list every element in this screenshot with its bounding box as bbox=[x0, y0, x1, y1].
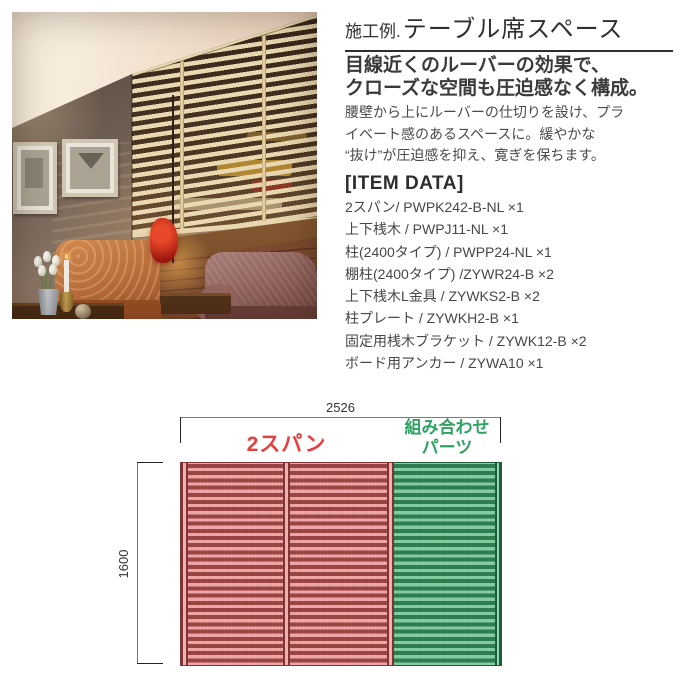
item-row: 柱(2400タイプ) / PWPP24-NL ×1 bbox=[345, 241, 680, 263]
description-line-1: 腰壁から上にルーバーの仕切りを設け、プラ bbox=[345, 102, 680, 124]
tulip-flower bbox=[49, 264, 57, 275]
picture-art-right bbox=[70, 147, 110, 189]
title-prefix: 施工例. bbox=[345, 17, 401, 42]
parts-label-line-1: 組み合わせ bbox=[393, 418, 501, 438]
item-row: 棚柱(2400タイプ) /ZYWR24-B ×2 bbox=[345, 263, 680, 285]
parts-label-line-2: パーツ bbox=[393, 438, 501, 458]
dimension-tick bbox=[137, 462, 163, 463]
candle-flame bbox=[65, 254, 68, 259]
diagram-height-dimension: 1600 bbox=[116, 524, 132, 604]
diagram-post bbox=[495, 463, 501, 665]
wall-corner-shadow bbox=[131, 74, 133, 244]
picture-frame-left bbox=[13, 142, 57, 214]
picture-detail bbox=[25, 158, 43, 188]
description-line-3: “抜け”が圧迫感を抑え、寛ぎを保ちます。 bbox=[345, 145, 680, 167]
diagram-height-dimension-line bbox=[137, 462, 138, 664]
installation-photo bbox=[12, 12, 317, 319]
diagram-width-dimension: 2526 bbox=[180, 400, 501, 415]
diagram-parts-panel bbox=[393, 462, 502, 666]
candlestick bbox=[60, 292, 73, 312]
tulip-flower bbox=[43, 251, 51, 262]
dimension-tick bbox=[137, 663, 163, 664]
item-row: ボード用アンカー / ZYWA10 ×1 bbox=[345, 352, 680, 374]
page: 施工例. テーブル席スペース 目線近くのルーバーの効果で、 クローズな空間も圧迫… bbox=[0, 0, 680, 680]
picture-frame-right bbox=[62, 139, 118, 197]
item-row: 上下桟木L金具 / ZYWKS2-B ×2 bbox=[345, 285, 680, 307]
item-row: 2スパン/ PWPK242-B-NL ×1 bbox=[345, 196, 680, 218]
item-data-heading: [ITEM DATA] bbox=[345, 173, 675, 195]
tulip-bucket bbox=[38, 289, 59, 315]
diagram-span-panel bbox=[180, 462, 395, 666]
description-line-2: イベート感のあるスペースに。緩やかな bbox=[345, 124, 680, 146]
page-title: 施工例. テーブル席スペース bbox=[345, 9, 673, 52]
tulip-flower bbox=[38, 265, 46, 276]
diagram-post bbox=[283, 463, 290, 665]
lead-line-2: クローズな空間も圧迫感なく構成。 bbox=[345, 77, 675, 100]
item-row: 柱プレート / ZYWKH2-B ×1 bbox=[345, 307, 680, 329]
title-text: テーブル席スペース bbox=[403, 9, 624, 44]
item-data-list: 2スパン/ PWPK242-B-NL ×1 上下桟木 / PWPJ11-NL ×… bbox=[345, 196, 680, 374]
diagram-post bbox=[181, 463, 188, 665]
item-row: 固定用桟木ブラケット / ZYWK12-B ×2 bbox=[345, 330, 680, 352]
lead-line-1: 目線近くのルーバーの効果で、 bbox=[345, 54, 675, 77]
glass-ornament bbox=[75, 304, 91, 319]
diagram-span-label: 2スパン bbox=[180, 428, 393, 458]
item-row: 上下桟木 / PWPJ11-NL ×1 bbox=[345, 218, 680, 240]
picture-art-left bbox=[21, 150, 49, 206]
red-lamp bbox=[150, 218, 178, 263]
lead-heading: 目線近くのルーバーの効果で、 クローズな空間も圧迫感なく構成。 bbox=[345, 54, 675, 100]
picture-detail bbox=[78, 153, 104, 169]
diagram-parts-label: 組み合わせ パーツ bbox=[393, 418, 501, 458]
candle bbox=[64, 260, 69, 292]
description-paragraph: 腰壁から上にルーバーの仕切りを設け、プラ イベート感のあるスペースに。緩やかな … bbox=[345, 102, 680, 167]
